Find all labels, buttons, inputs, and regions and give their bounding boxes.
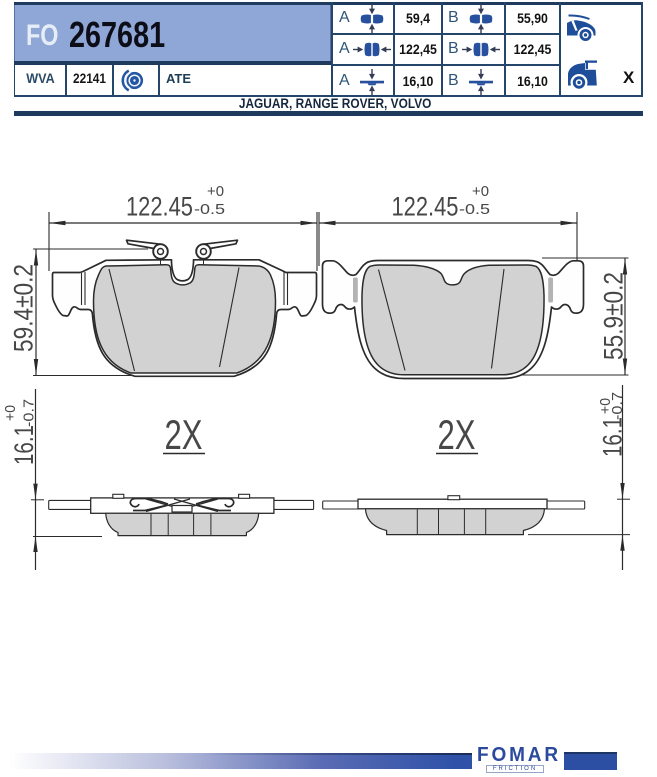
svg-text:122.45: 122.45 xyxy=(392,192,459,222)
svg-text:55.9±0.2: 55.9±0.2 xyxy=(599,272,629,360)
svg-text:-0.5: -0.5 xyxy=(194,201,225,218)
svg-text:122.45: 122.45 xyxy=(126,192,193,222)
svg-text:2X: 2X xyxy=(165,411,203,458)
svg-text:59.4±0.2: 59.4±0.2 xyxy=(9,264,39,352)
svg-text:+0: +0 xyxy=(207,183,224,200)
svg-text:-0.7: -0.7 xyxy=(609,392,626,420)
svg-text:+0: +0 xyxy=(472,183,489,200)
svg-text:-0.5: -0.5 xyxy=(459,201,490,218)
svg-text:2X: 2X xyxy=(438,411,476,458)
svg-text:16.1: 16.1 xyxy=(9,425,39,465)
svg-text:+0: +0 xyxy=(2,405,19,421)
